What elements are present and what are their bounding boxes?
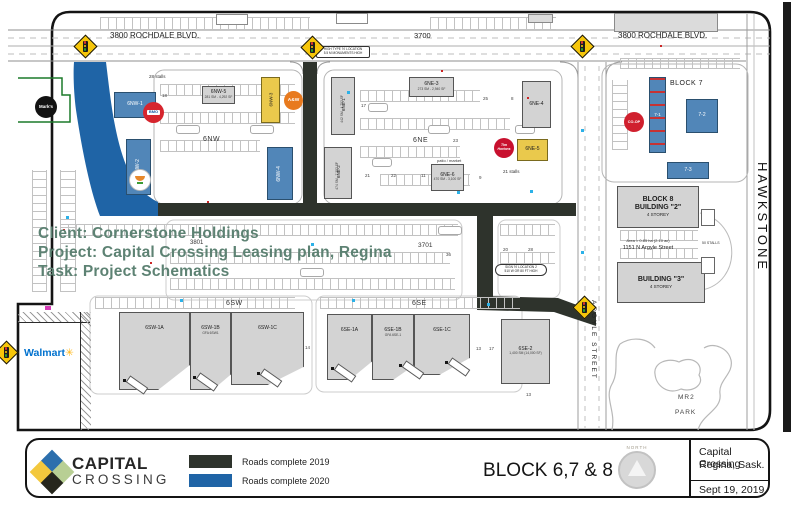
building-6nw5: 6NW-5 281 SM - 4,292 SF xyxy=(202,86,235,104)
loading-dock xyxy=(399,364,402,367)
building-6ne1: 6NE-1 442 SM - 4,752 SF xyxy=(331,77,355,135)
building-area-label: 1,400 SM (14,000 SF) xyxy=(509,352,541,356)
building-storey-label: 4 STOREY xyxy=(647,212,669,217)
traffic-signal-icon xyxy=(74,35,96,57)
parking-island xyxy=(428,125,450,134)
traffic-signal-icon xyxy=(0,341,17,363)
building-area-label: 470 SM - 3,100 SF xyxy=(434,178,462,182)
stall-count-label: 28 stalls xyxy=(149,74,166,79)
aw-logo-text: A&W xyxy=(288,98,299,103)
utility-marker xyxy=(207,201,209,203)
building-area-label: 273 SM - 2,940 SF xyxy=(418,88,446,92)
building-label: BLOCK 8 xyxy=(643,196,674,204)
restaurant-logo-glyph xyxy=(135,176,145,181)
info-divider-line xyxy=(690,480,770,481)
hydrant-marker xyxy=(352,299,355,302)
aw-logo: A&W xyxy=(284,91,303,110)
building-7-1: 7-1 xyxy=(649,77,666,153)
offsite-building xyxy=(614,13,718,32)
count-label: 11 xyxy=(421,173,426,178)
brand-name-line2: CROSSING xyxy=(72,472,170,487)
street-label-rochdale-west: 3800 ROCHDALE BLVD. xyxy=(110,31,199,40)
annotation-client: Client: Cornerstone Holdings xyxy=(38,225,259,243)
utility-marker xyxy=(45,306,51,310)
building-7-3: 7-3 xyxy=(667,162,709,179)
traffic-signal-icon xyxy=(573,296,595,318)
walmart-logo-text: Walmart xyxy=(24,347,65,359)
marks-logo: Mark's xyxy=(35,96,57,118)
parking-row xyxy=(95,297,295,309)
north-compass-icon xyxy=(618,451,656,489)
annotation-project: Project: Capital Crossing Leasing plan, … xyxy=(38,244,392,262)
count-label: 28 xyxy=(528,247,533,252)
tim-hortons-logo-text: Hortons xyxy=(498,148,511,152)
bmo-logo: BMO xyxy=(143,102,164,123)
legend-label-2019: Roads complete 2019 xyxy=(242,457,330,467)
hydrant-marker xyxy=(581,129,584,132)
walmart-logo: Walmart✳ xyxy=(24,347,74,359)
parking-island xyxy=(368,103,388,112)
title-bar-divider xyxy=(689,438,691,496)
building-storey-label: 4 STOREY xyxy=(650,284,672,289)
count-label: 25 xyxy=(483,96,488,101)
legend-swatch-2019 xyxy=(189,455,232,468)
parking-island xyxy=(250,125,274,134)
leasing-plan-sheet: 6NW-1 6NW-2 6NW-3 6NW-4 6NW-5 281 SM - 4… xyxy=(0,0,800,508)
count-label: 20 xyxy=(503,247,508,252)
hydrant-marker xyxy=(457,191,460,194)
count-label: 21 xyxy=(365,173,370,178)
garbage-enclosure xyxy=(701,257,715,274)
tim-hortons-logo: Tim Hortons xyxy=(494,138,514,158)
count-label: 23 xyxy=(453,138,458,143)
legend-swatch-2020 xyxy=(189,474,232,487)
building-label: 6SE-1C xyxy=(433,328,451,334)
marks-logo-text: Mark's xyxy=(39,105,53,110)
walmart-parcel-hatch xyxy=(80,312,91,430)
count-label: 13 xyxy=(526,392,531,397)
coop-logo-text: CO-OP xyxy=(628,120,640,124)
building-label: 7-2 xyxy=(698,113,705,119)
count-label: 14 xyxy=(305,345,310,350)
garbage-enclosure xyxy=(701,209,715,226)
loading-dock xyxy=(445,361,448,364)
building-area-label: 442 SM - 4,752 SF xyxy=(341,95,345,123)
utility-marker xyxy=(660,45,662,47)
parking-island xyxy=(372,158,392,167)
building-label: 6NE-4 xyxy=(529,102,543,108)
building-6ne3: 6NE-3 273 SM - 2,940 SF xyxy=(409,77,454,97)
building-label: BUILDING "2" xyxy=(635,204,681,212)
building-label: 6NW-4 xyxy=(277,166,283,181)
area-label-6nw: 6NW xyxy=(203,136,220,143)
building-7-2: 7-2 xyxy=(686,99,718,133)
street-label-rochdale-east: 3800 ROCHDALE BLVD. xyxy=(618,31,707,40)
compass-label: NORTH xyxy=(617,445,657,450)
building-block8-2: BLOCK 8 BUILDING "2" 4 STOREY xyxy=(617,186,699,228)
building-6ne2: 6NE-2 474 SM - 7,302 SF xyxy=(324,147,352,199)
hydrant-marker xyxy=(347,91,350,94)
bmo-logo-text: BMO xyxy=(147,110,160,114)
building-block8-3: BUILDING "3" 4 STOREY xyxy=(617,262,705,303)
sheet-date: Sept 19, 2019 xyxy=(699,484,764,496)
building-label: 6SW-1C xyxy=(258,326,277,332)
count-label: 13 xyxy=(476,346,481,351)
hawkstone-curb-bar xyxy=(783,2,791,432)
legend-label-2020: Roads complete 2020 xyxy=(242,476,330,486)
area-label-6se: 6SE xyxy=(412,300,427,307)
offsite-building xyxy=(216,14,248,25)
coop-logo: CO-OP xyxy=(624,112,644,132)
building-6se2: 6SE-2 1,400 SM (14,000 SF) xyxy=(501,319,550,384)
offsite-building xyxy=(528,14,553,23)
building-label: 7-3 xyxy=(684,168,691,174)
project-location: Regina, Sask. xyxy=(699,459,764,471)
sign-text: 5.5 M MONUMENTS HIGH xyxy=(319,52,367,56)
block8-area-label: Area = 0.85 ha (2.10 ac) xyxy=(600,238,696,243)
patio-market-label: patio / market xyxy=(437,158,461,163)
building-label: 6NW-1 xyxy=(127,102,142,108)
block8-address-label: 1151 N Argyle Street xyxy=(600,245,696,251)
count-label: 36 xyxy=(446,252,451,257)
street-label-hawkstone: HAWKSTONE xyxy=(755,162,770,272)
count-label: 18 xyxy=(162,93,167,98)
building-label: BUILDING "3" xyxy=(638,276,684,284)
offsite-building xyxy=(336,13,368,24)
address-3701: 3701 xyxy=(418,242,432,249)
park-paths xyxy=(609,339,731,430)
title-bar: CAPITAL CROSSING Roads complete 2019 Roa… xyxy=(25,438,770,498)
count-label: 17 xyxy=(361,103,366,108)
count-label: 22 xyxy=(391,173,396,178)
area-label-6sw: 6SW xyxy=(226,300,243,307)
sign-location-callout: SIGN 'N' LOCATION 2 510 W OR 80 FT HIGH xyxy=(495,264,547,276)
walmart-spark-icon: ✳ xyxy=(65,347,74,359)
street-label-3700: 3700 xyxy=(414,31,431,40)
building-label: 6NE-5 xyxy=(525,147,539,153)
loading-dock xyxy=(123,379,126,382)
stall-count-label: 21 stalls xyxy=(503,169,520,174)
building-area-label: 281 SM - 4,292 SF xyxy=(205,96,233,100)
parking-island xyxy=(176,125,200,134)
sheet-title: BLOCK 6,7 & 8 xyxy=(467,460,629,482)
parking-island xyxy=(300,268,324,277)
sign-text: 510 W OR 80 FT HIGH xyxy=(498,270,544,274)
area-label-park: PARK xyxy=(675,409,696,416)
building-area-label: GFA 6SW1 xyxy=(202,332,218,336)
hydrant-marker xyxy=(487,303,490,306)
utility-marker xyxy=(441,70,443,72)
count-label: 8 xyxy=(511,96,514,101)
building-label: 6SW-1A xyxy=(145,326,164,332)
utility-marker xyxy=(527,97,529,99)
parking-row xyxy=(500,252,555,264)
parking-row xyxy=(360,146,460,158)
loading-dock xyxy=(193,376,196,379)
building-6ne6: 6NE-6 470 SM - 3,100 SF xyxy=(431,164,464,191)
parking-row xyxy=(100,17,310,30)
hydrant-marker xyxy=(530,190,533,193)
restaurant-logo-glyph xyxy=(137,182,143,184)
building-area-label: GFA 6SE-1 xyxy=(385,334,402,338)
count-label: 17 xyxy=(489,346,494,351)
area-label-mr2: MR2 xyxy=(678,394,695,401)
traffic-signal-icon xyxy=(301,36,323,58)
restaurant-logo xyxy=(129,169,151,191)
parking-row xyxy=(500,224,555,236)
building-6ne5: 6NE-5 xyxy=(517,139,548,161)
annotation-task: Task: Project Schematics xyxy=(38,263,229,281)
hydrant-marker xyxy=(66,216,69,219)
hydrant-marker xyxy=(180,299,183,302)
building-6nw3: 6NW-3 xyxy=(261,77,280,123)
area-label-block7: BLOCK 7 xyxy=(670,80,703,87)
area-label-6ne: 6NE xyxy=(413,137,428,144)
parking-island xyxy=(438,226,462,235)
building-area-label: 474 SM - 7,302 SF xyxy=(336,162,340,190)
block8-stalls-label: 50 STALLS xyxy=(702,241,720,245)
parking-row xyxy=(620,58,740,69)
brand-name-line1: CAPITAL xyxy=(72,454,148,474)
building-label: 6SE-1A xyxy=(341,328,358,334)
building-label: 7-1 xyxy=(654,112,661,117)
count-label: 9 xyxy=(479,175,482,180)
loading-dock xyxy=(257,372,260,375)
building-6ne4: 6NE-4 xyxy=(522,81,551,128)
building-label: 6NW-3 xyxy=(268,93,273,107)
hydrant-marker xyxy=(581,251,584,254)
loading-dock xyxy=(331,367,334,370)
traffic-signal-icon xyxy=(571,35,593,57)
building-6nw4: 6NW-4 xyxy=(267,147,293,200)
